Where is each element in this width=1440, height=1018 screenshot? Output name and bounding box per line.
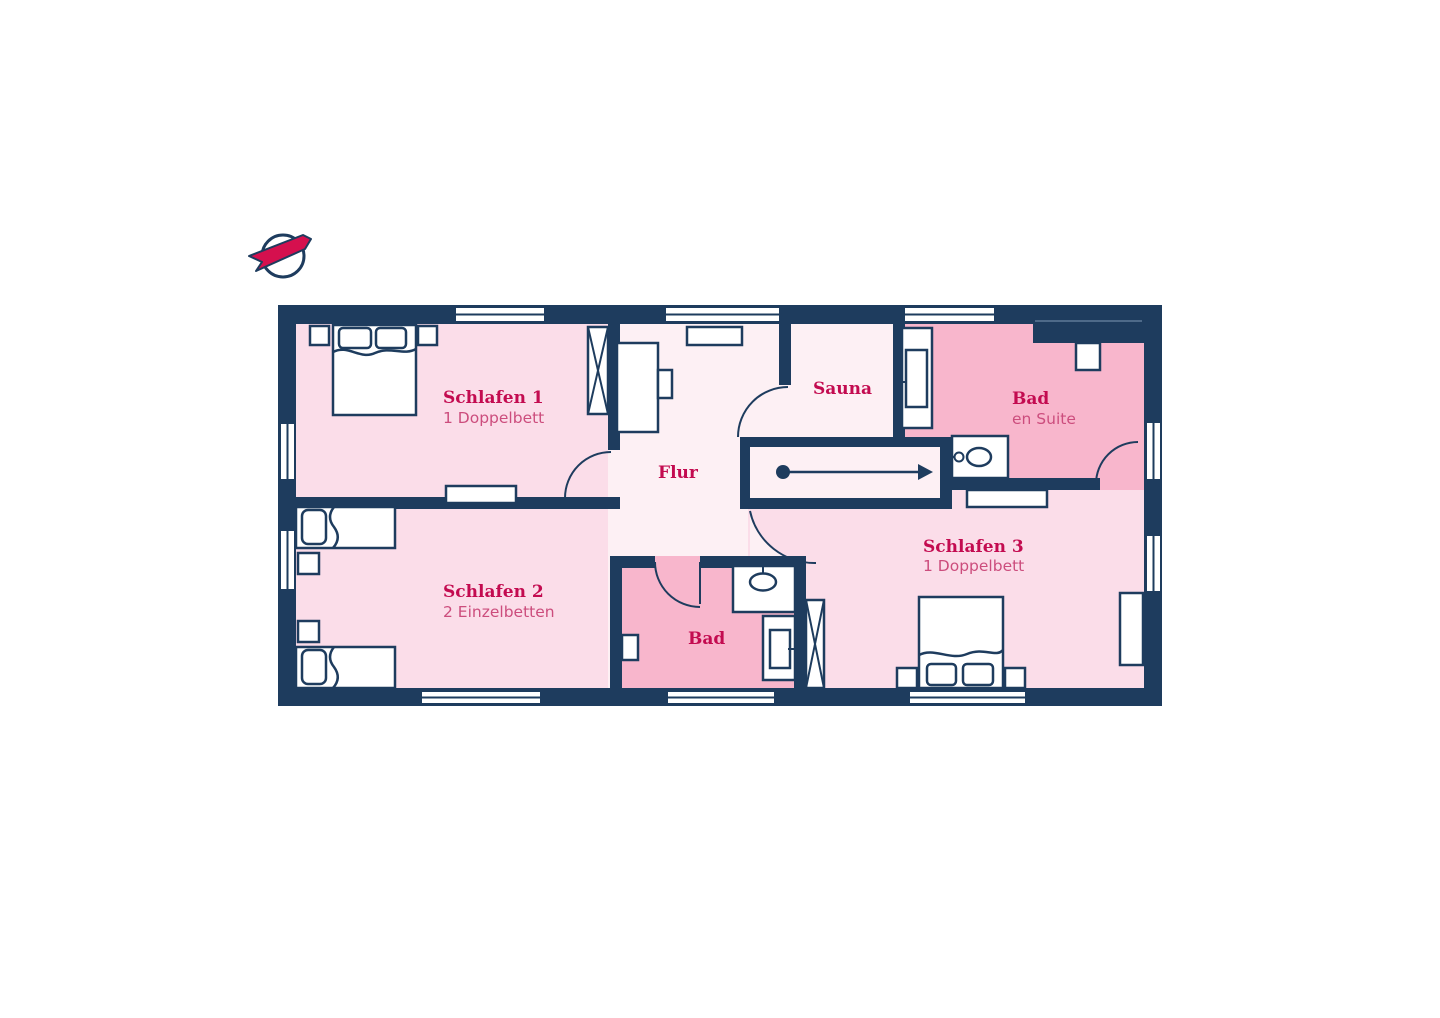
window-bottom-schlafen2 xyxy=(421,691,541,704)
window-bottom-bad xyxy=(667,691,775,704)
wall-exterior-right xyxy=(1144,305,1162,706)
nightstand xyxy=(1005,668,1025,688)
window-top-schlafen1 xyxy=(455,307,545,322)
room-label-sauna: Sauna xyxy=(813,379,872,399)
window-right-bad-en-suite xyxy=(1146,422,1161,480)
north-indicator-icon xyxy=(249,235,311,277)
pillow xyxy=(302,510,326,544)
wardrobe-schlafen1 xyxy=(588,327,608,414)
window-top-flur xyxy=(665,307,780,322)
room-label-bad: Bad xyxy=(688,629,725,649)
window-left-schlafen1 xyxy=(280,423,295,480)
wardrobe-flur xyxy=(617,343,658,432)
wardrobe-schlafen3-right xyxy=(1120,593,1143,665)
wall-flur-sauna xyxy=(779,324,791,385)
staircase xyxy=(740,437,952,509)
double-bed-schlafen1 xyxy=(333,325,416,415)
floor-plan-page: Schlafen 1 1 Doppelbett Schlafen 2 2 Ein… xyxy=(0,0,1440,1018)
pillow xyxy=(963,664,993,685)
single-bed-top-schlafen2 xyxy=(296,507,395,548)
wall-bad-top-left xyxy=(610,556,655,568)
shelf-flur xyxy=(687,327,742,345)
wall-closet-bad-en-suite xyxy=(1033,324,1144,343)
stairs-direction-start-dot xyxy=(776,465,790,479)
sink-bad xyxy=(733,564,795,612)
nightstand xyxy=(897,668,917,688)
room-label-schlafen3: Schlafen 3 xyxy=(923,537,1024,557)
dresser-schlafen1 xyxy=(446,486,516,503)
double-bed-schlafen3 xyxy=(919,597,1003,688)
room-sublabel-bad-en-suite: en Suite xyxy=(1012,410,1076,428)
window-left-schlafen2 xyxy=(280,530,295,590)
wardrobe-knob xyxy=(658,370,672,398)
nightstand xyxy=(298,621,319,642)
room-sublabel-schlafen1: 1 Doppelbett xyxy=(443,409,544,427)
room-sublabel-schlafen3: 1 Doppelbett xyxy=(923,557,1024,575)
window-top-bad-en-suite xyxy=(904,307,995,322)
pillow xyxy=(376,328,406,348)
room-label-bad-en-suite: Bad xyxy=(1012,389,1049,409)
nightstand xyxy=(418,326,437,345)
floor-plan-canvas: Schlafen 1 1 Doppelbett Schlafen 2 2 Ein… xyxy=(0,0,1440,1018)
wall-bad-en-suite-schlafen3 xyxy=(940,478,1100,490)
nightstand xyxy=(298,553,319,574)
single-bed-bottom-schlafen2 xyxy=(296,647,395,688)
shower-bad-en-suite xyxy=(897,328,932,428)
wardrobe-schlafen3-left xyxy=(806,600,824,688)
sideboard-schlafen3 xyxy=(967,490,1047,507)
pillow xyxy=(927,664,956,685)
vent-shaft xyxy=(1076,343,1100,370)
nightstand xyxy=(310,326,329,345)
window-bottom-schlafen3 xyxy=(909,691,1026,704)
fixture-bad xyxy=(622,635,638,660)
room-label-schlafen1: Schlafen 1 xyxy=(443,388,544,408)
shower-bad xyxy=(763,616,798,680)
wall-exterior-left xyxy=(278,305,296,706)
room-sublabel-schlafen2: 2 Einzelbetten xyxy=(443,603,555,621)
pillow xyxy=(339,328,371,348)
room-label-schlafen2: Schlafen 2 xyxy=(443,582,544,602)
window-right-schlafen3 xyxy=(1146,535,1161,592)
pillow xyxy=(302,650,326,684)
room-label-flur: Flur xyxy=(658,463,699,483)
sink-bad-en-suite xyxy=(952,436,1008,478)
wall-bad-left xyxy=(610,556,622,688)
